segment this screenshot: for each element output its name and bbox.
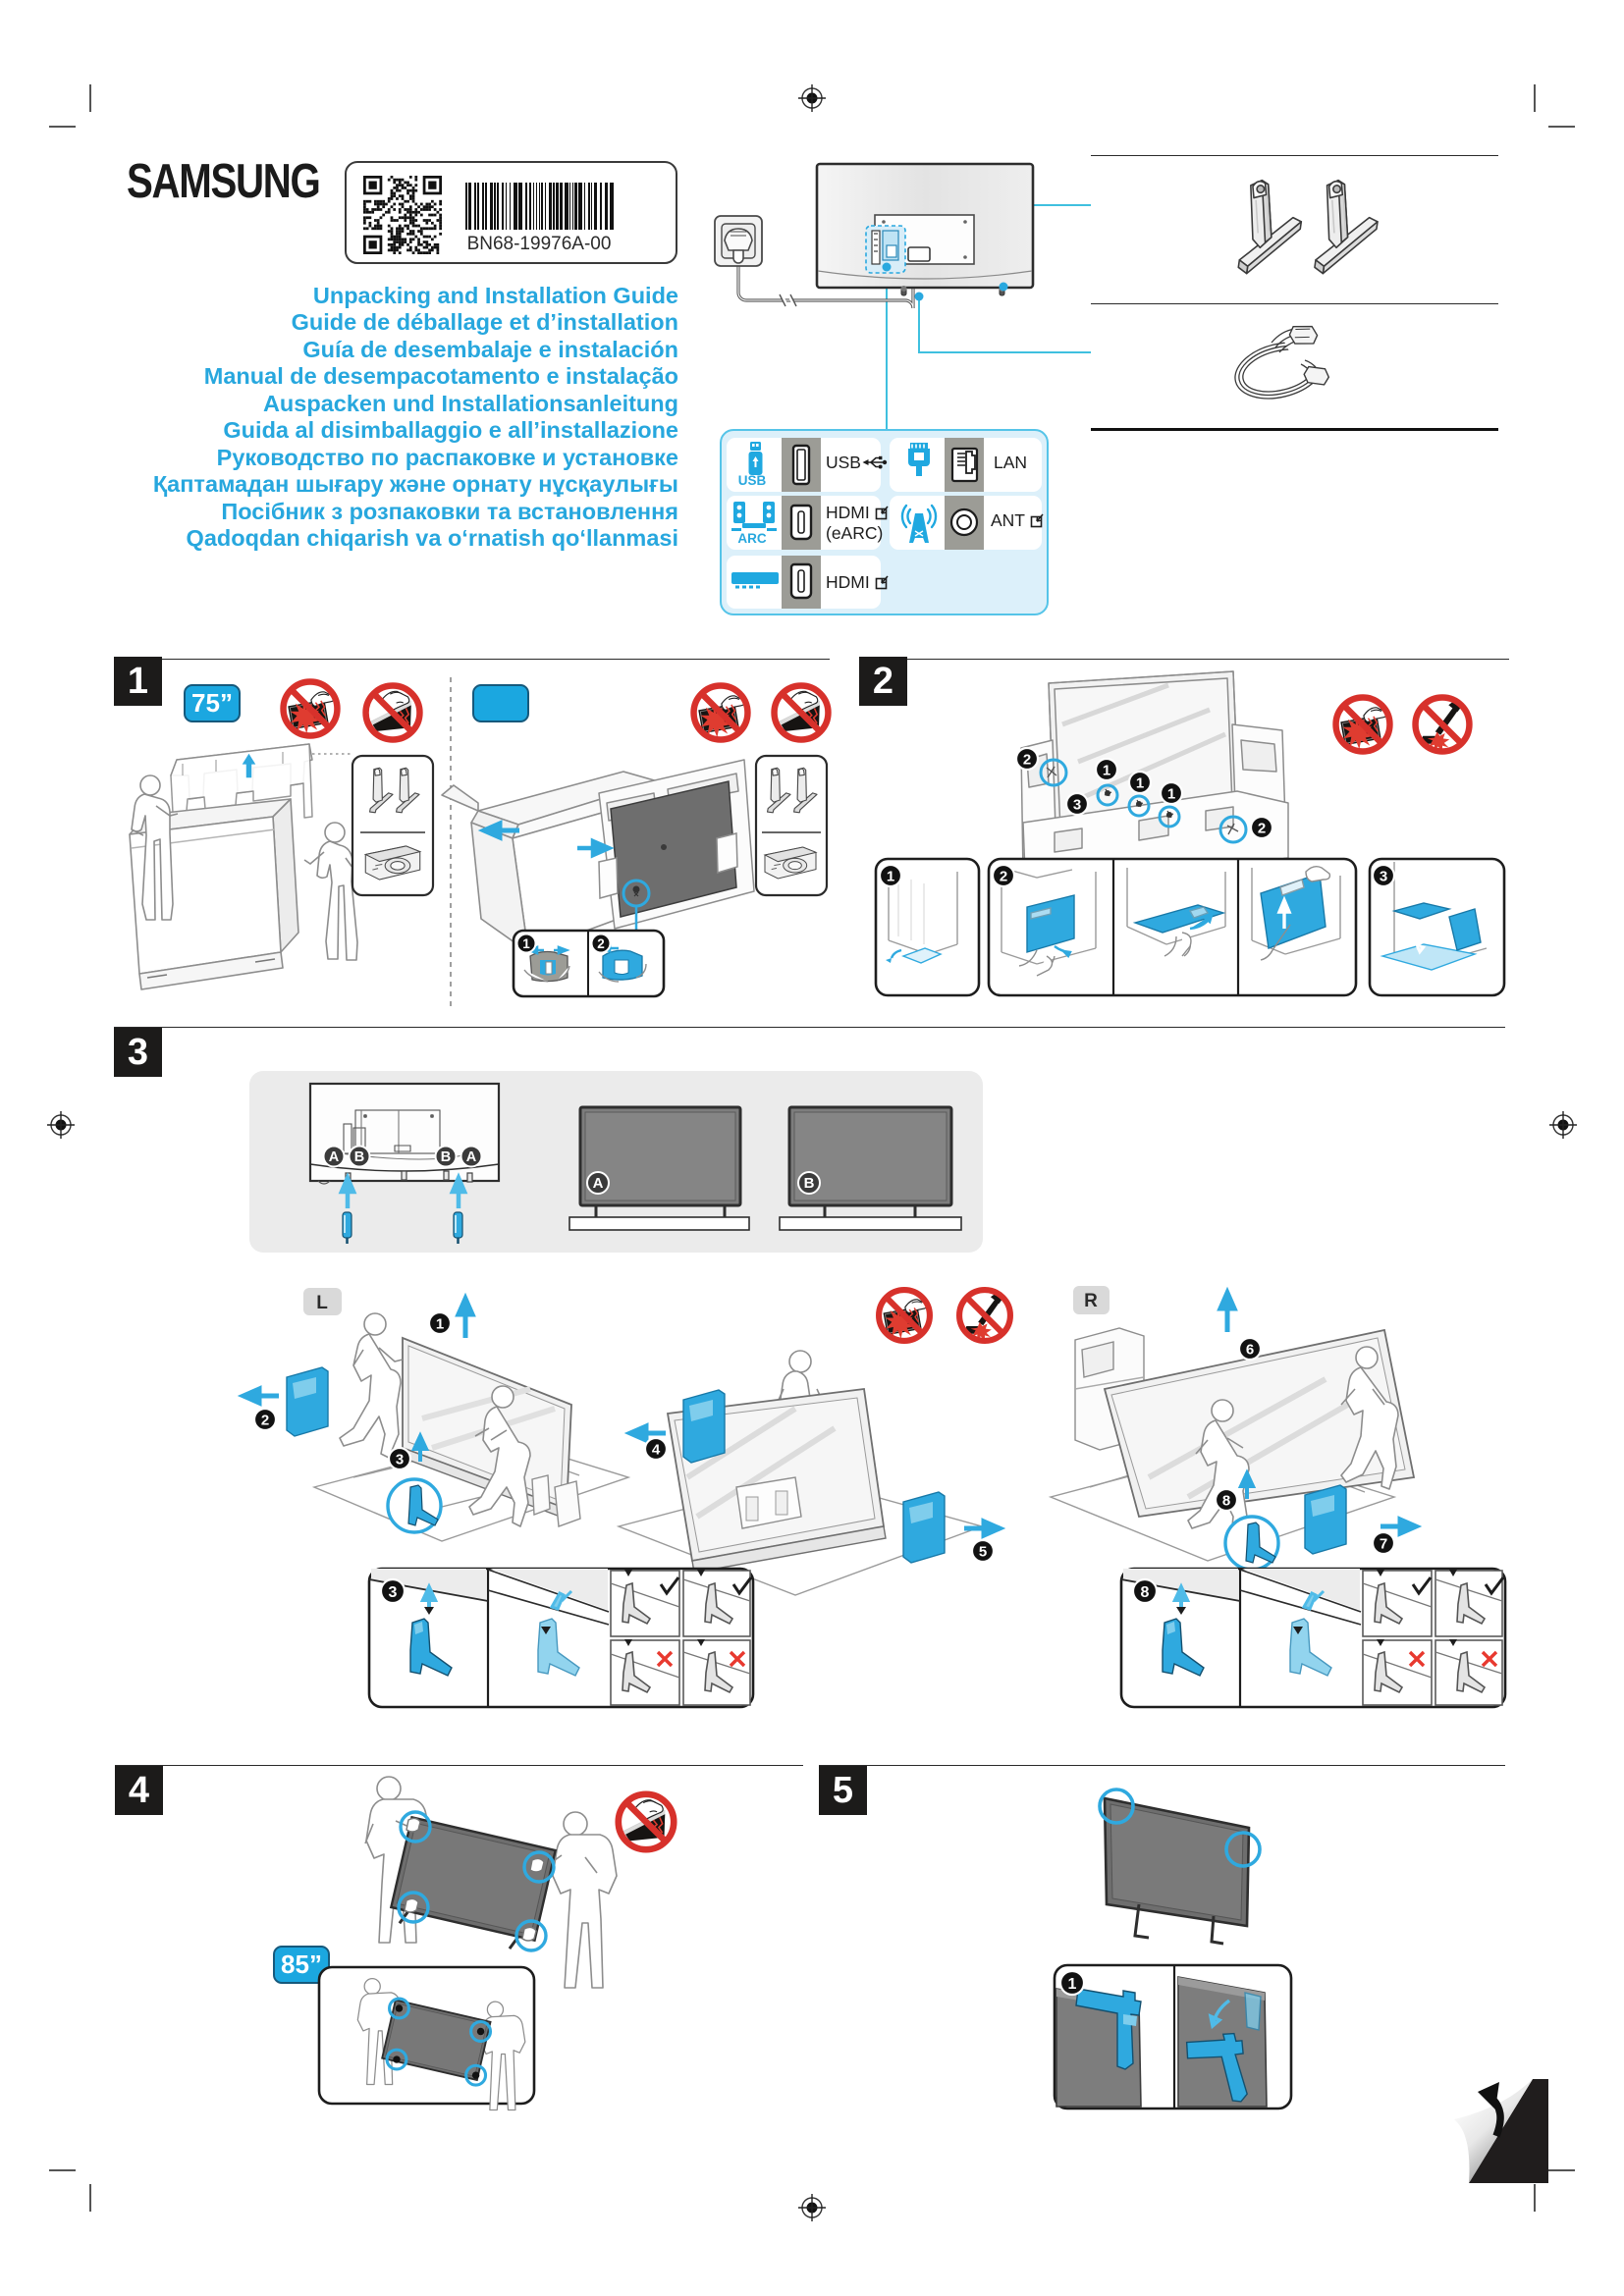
svg-text:2: 2 — [1000, 869, 1007, 885]
svg-text:1: 1 — [522, 936, 530, 951]
svg-text:R: R — [1084, 1291, 1098, 1311]
svg-text:3: 3 — [1380, 869, 1387, 885]
svg-text:2: 2 — [597, 936, 605, 951]
svg-text:B: B — [804, 1175, 815, 1192]
svg-text:4: 4 — [652, 1442, 661, 1459]
svg-text:5: 5 — [979, 1544, 987, 1561]
svg-text:1: 1 — [1103, 763, 1110, 779]
svg-text:A: A — [329, 1149, 340, 1165]
svg-text:A: A — [593, 1175, 604, 1192]
svg-text:1: 1 — [436, 1316, 444, 1333]
svg-text:1: 1 — [1068, 1976, 1077, 1993]
svg-text:8: 8 — [1222, 1493, 1230, 1510]
svg-text:B: B — [441, 1149, 451, 1165]
svg-text:8: 8 — [1141, 1584, 1150, 1601]
svg-text:1: 1 — [1136, 775, 1144, 792]
svg-text:3: 3 — [396, 1452, 404, 1468]
svg-text:2: 2 — [261, 1413, 269, 1429]
svg-text:2: 2 — [1023, 752, 1031, 769]
svg-text:3: 3 — [1073, 797, 1081, 814]
svg-text:B: B — [354, 1149, 364, 1165]
svg-text:3: 3 — [389, 1584, 398, 1601]
svg-text:A: A — [466, 1149, 477, 1165]
svg-text:6: 6 — [1246, 1342, 1254, 1359]
svg-text:L: L — [316, 1293, 328, 1313]
svg-text:1: 1 — [887, 869, 894, 885]
svg-text:1: 1 — [1167, 786, 1175, 803]
svg-text:2: 2 — [1258, 821, 1266, 837]
svg-text:7: 7 — [1380, 1536, 1387, 1553]
